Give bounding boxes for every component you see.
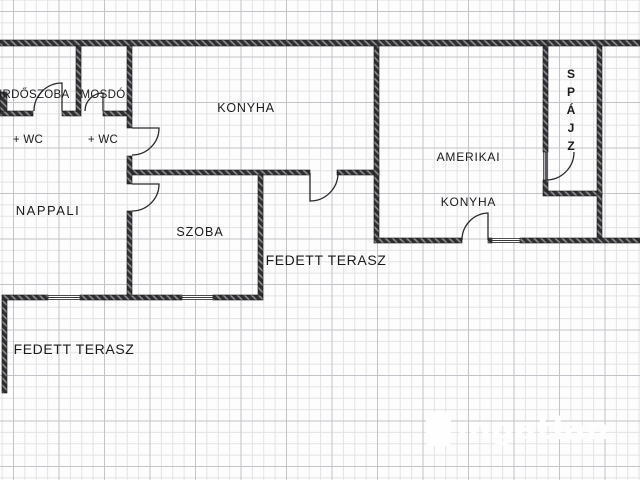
window-symbol-nappali <box>48 296 80 300</box>
wall-spajz-bottom <box>543 191 602 196</box>
wall-spajz-left-a <box>543 46 548 152</box>
door-symbol-nappali-szoba <box>132 184 159 211</box>
wall-szoba-right <box>258 175 263 295</box>
room-label-amerikai-konyha: AMERIKAI KONYHA <box>420 120 517 240</box>
wall-spajz-right <box>597 46 602 238</box>
room-label-mosdo-line1: MOSDÓ <box>78 88 128 103</box>
wall-south-c <box>213 295 263 300</box>
room-label-mosdo-line2: + WC <box>78 133 128 148</box>
room-label-amerikai-line2: KONYHA <box>420 195 517 210</box>
wall-south-a <box>2 295 48 300</box>
windows <box>48 239 520 300</box>
watermark: ingatlan <box>426 411 609 447</box>
room-label-fedett-terasz-middle: FEDETT TERASZ <box>264 252 388 268</box>
wall-top-outer <box>0 40 640 46</box>
room-label-furdoszoba-line1: FÜRDŐSZOBA <box>0 88 72 103</box>
wall-central <box>374 46 379 238</box>
watermark-text: ingatlan <box>457 411 609 447</box>
room-label-amerikai-line1: AMERIKAI <box>420 150 517 165</box>
wall-konyha-bottom-b <box>337 170 379 175</box>
wall-west-mid-c <box>127 211 132 295</box>
room-label-konyha: KONYHA <box>198 101 294 116</box>
room-label-furdoszoba: FÜRDŐSZOBA + WC <box>0 58 72 178</box>
wall-spajz-left-b <box>543 180 548 191</box>
door-symbol-konyha-terasz <box>310 173 338 201</box>
room-label-szoba: SZOBA <box>159 225 241 239</box>
wall-konyha-bottom-a <box>127 170 310 175</box>
window-symbol-szoba <box>182 296 213 300</box>
wall-amkonyha-bottom-c <box>520 238 640 243</box>
wall-terrace-left <box>2 300 7 393</box>
wall-south-b <box>80 295 182 300</box>
room-label-furdoszoba-line2: + WC <box>0 133 72 148</box>
room-label-mosdo: MOSDÓ + WC <box>78 58 128 178</box>
door-symbol-nappali-konyha <box>132 128 159 155</box>
room-label-fedett-terasz-bottom: FEDETT TERASZ <box>10 341 138 357</box>
watermark-logo-icon <box>426 412 451 446</box>
floor-plan-canvas: FÜRDŐSZOBA + WC MOSDÓ + WC KONYHA AMERIK… <box>0 0 640 480</box>
room-label-nappali: NAPPALI <box>6 203 90 218</box>
room-label-spajz: SPÁJZ <box>564 66 578 158</box>
